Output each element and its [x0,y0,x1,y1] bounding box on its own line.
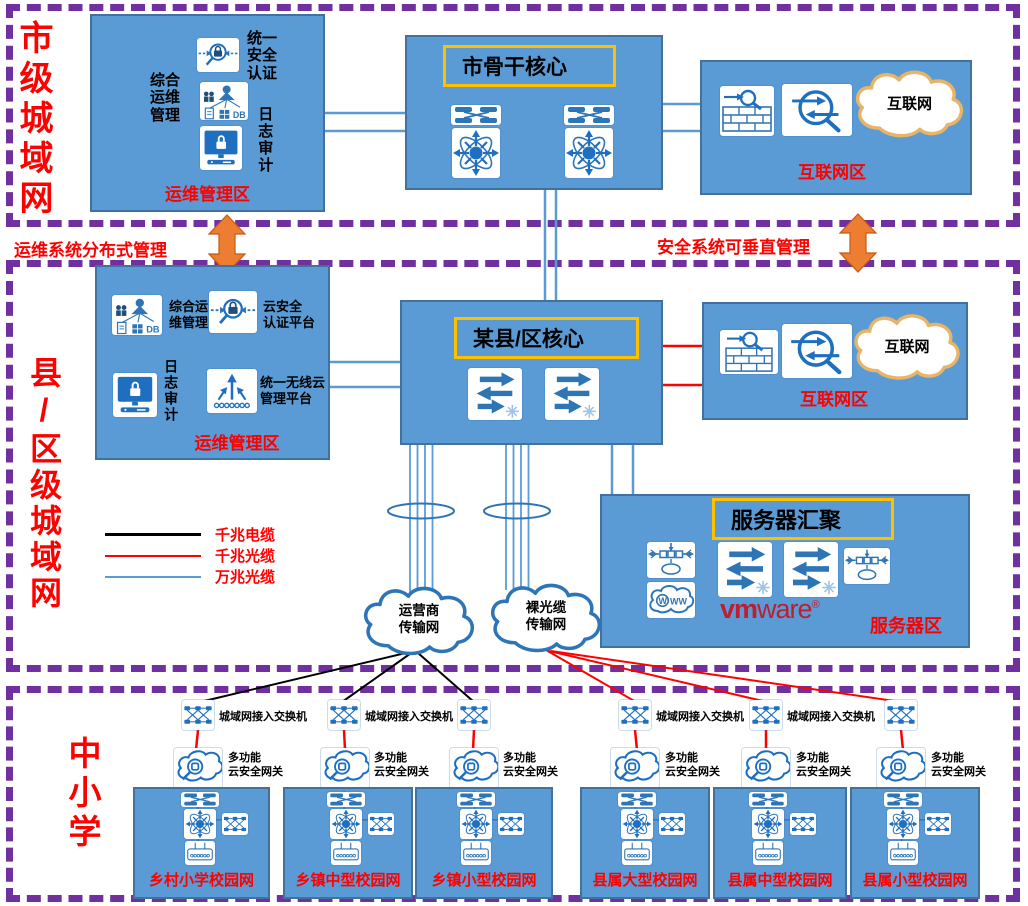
campus-box-town-medium: 乡镇中型校园网 [283,787,413,899]
vmware-logo: vmware® [720,594,819,625]
access-switch-icon [750,700,782,730]
county-cloud-auth-label: 云安全 认证平台 [263,299,315,330]
campus-name: 县属小型校园网 [852,869,978,890]
access-switch-icon [885,700,917,730]
router-icon [565,128,613,178]
campus-name: 县属大型校园网 [582,869,708,890]
legend-copper: 千兆电缆 [105,524,275,545]
county-mgmt-label: 综合运 维管理 [169,299,208,330]
load-balancer-icon [844,548,890,584]
wireless-ap-icon [622,841,652,865]
server-zone-label: 服务器区 [856,612,956,638]
wireless-ap-icon [185,841,215,865]
city-core-box: 市骨干核心 [405,35,663,190]
wireless-ap-icon [461,841,491,865]
cloud-security-gateway-icon [450,748,498,788]
wireless-ap-icon [331,841,361,865]
access-switch-icon [498,813,524,835]
crossbar-switch-icon [618,792,656,807]
firewall-icon [720,86,774,136]
access-switch-label: 城域网接入交换机 [656,708,744,724]
campus-box-county-medium: 县属中型校园网 [713,787,847,899]
gateway-label: 多功能云安全网关 [796,751,851,780]
gateway-label: 多功能云安全网关 [665,751,720,780]
legend-label: 千兆电缆 [215,524,275,545]
www-cloud-icon [647,582,695,618]
cloud-security-gateway-icon [174,748,222,788]
county-ops-box: 综合运 维管理 云安全 认证平台 日志审计 统一无线云 管理平台 运维管理区 [95,265,330,460]
router-icon [330,809,362,839]
security-auth-icon [209,291,257,333]
gateway-icon [782,324,852,378]
campus-name: 乡村小学校园网 [135,869,268,890]
crossbar-switch-icon [181,792,219,807]
city-mgmt-label: 综合 运维 管理 [150,72,180,124]
legend-fiber-10g: 万兆光缆 [105,566,275,587]
county-core-box: 某县/区核心 [400,300,663,445]
legend-line-blue [105,576,201,578]
server-title: 服务器汇聚 [712,498,894,540]
wireless-ap-icon [753,841,783,865]
l3-switch-icon [545,368,599,420]
access-switch-label: 城域网接入交换机 [219,708,307,724]
gateway-icon [782,84,852,136]
legend-line-red [105,555,201,557]
l3-switch-icon [784,542,838,597]
access-switch-icon [925,813,951,835]
campus-name: 县属中型校园网 [715,869,845,890]
campus-box-town-small: 乡镇小型校园网 [415,787,553,899]
city-ops-box: 统一 安全 认证 综合 运维 管理 日志审计 运维管理区 [90,14,325,212]
carrier-transport-cloud: 运营商 传输网 [360,583,478,659]
city-core-title: 市骨干核心 [443,45,616,87]
county-wireless-label: 统一无线云 管理平台 [260,375,325,406]
gateway-label: 多功能云安全网关 [503,751,558,780]
campus-box-county-small: 县属小型校园网 [850,787,980,899]
switch-icon [564,105,614,125]
crossbar-switch-icon [457,792,495,807]
log-audit-monitor-icon [200,126,242,170]
city-auth-label: 统一 安全 认证 [247,30,277,82]
section-label-school: 中小学 [66,736,99,856]
county-internet-zone-label: 互联网区 [734,385,934,410]
county-ops-zone-label: 运维管理区 [157,429,317,454]
security-auth-icon [197,38,239,72]
campus-box-rural-primary: 乡村小学校园网 [133,787,270,899]
city-internet-box: 互联网 互联网区 [700,60,972,195]
crossbar-switch-icon [884,792,922,807]
city-internet-zone-label: 互联网区 [732,158,932,183]
access-switch-icon [222,813,248,835]
campus-box-county-large: 县属大型校园网 [580,787,710,899]
access-switch-label: 城域网接入交换机 [365,708,453,724]
log-audit-monitor-icon [113,373,157,417]
county-internet-box: 互联网 互联网区 [702,302,968,420]
gateway-label: 多功能云安全网关 [931,751,986,780]
router-icon [752,809,784,839]
access-switch-icon [328,700,360,730]
switch-icon [451,105,501,125]
wireless-ap-icon [888,841,918,865]
access-switch-icon [619,700,651,730]
city-log-label: 日志审计 [256,106,273,190]
firewall-icon [720,330,778,374]
l3-switch-icon [468,368,522,420]
l3-switch-icon [718,542,772,597]
legend-line-black [105,533,201,536]
gateway-label: 多功能云安全网关 [228,751,283,780]
router-icon [452,128,500,178]
section-label-city: 市级城域网 [16,20,50,220]
access-switch-icon [182,700,214,730]
gateway-label: 多功能云安全网关 [374,751,429,780]
access-switch-icon [790,813,816,835]
network-topology-diagram: DB [0,0,1028,906]
legend-label: 万兆光缆 [215,566,275,587]
crossbar-switch-icon [327,792,365,807]
server-box: 服务器汇聚 vmware® 服务器区 [600,494,970,648]
cloud-security-gateway-icon [742,748,790,788]
router-icon [621,809,653,839]
ops-management-icon [200,82,248,120]
section-label-county: 县/区级城域网 [28,356,60,646]
legend-fiber-1g: 千兆光缆 [105,545,275,566]
internet-cloud-label: 互联网 [850,336,964,357]
banner-security-vertical: 安全系统可垂直管理 [657,233,810,258]
bare-fiber-transport-cloud: 裸光缆 传输网 [487,580,605,656]
crossbar-switch-icon [749,792,787,807]
router-icon [887,809,919,839]
access-switch-label: 城域网接入交换机 [787,708,875,724]
access-switch-icon [458,700,490,730]
cloud-security-gateway-icon [877,748,925,788]
access-switch-icon [368,813,394,835]
campus-name: 乡镇小型校园网 [417,869,551,890]
access-switch-icon [659,813,685,835]
campus-name: 乡镇中型校园网 [285,869,411,890]
wireless-controller-icon [207,369,257,413]
fiber-cloud-label: 裸光缆 传输网 [487,600,605,634]
legend-label: 千兆光缆 [215,545,275,566]
internet-cloud-icon: 互联网 [850,312,964,382]
router-icon [184,809,216,839]
city-ops-zone-label: 运维管理区 [92,180,323,205]
internet-cloud-label: 互联网 [852,93,967,114]
router-icon [460,809,492,839]
ops-management-icon [112,295,162,335]
load-balancer-icon [647,542,695,578]
county-core-title: 某县/区核心 [454,317,639,359]
banner-ops-distributed: 运维系统分布式管理 [14,236,167,261]
cloud-security-gateway-icon [611,748,659,788]
cloud-security-gateway-icon [321,748,369,788]
internet-cloud-icon: 互联网 [852,68,967,140]
carrier-cloud-label: 运营商 传输网 [360,603,478,637]
